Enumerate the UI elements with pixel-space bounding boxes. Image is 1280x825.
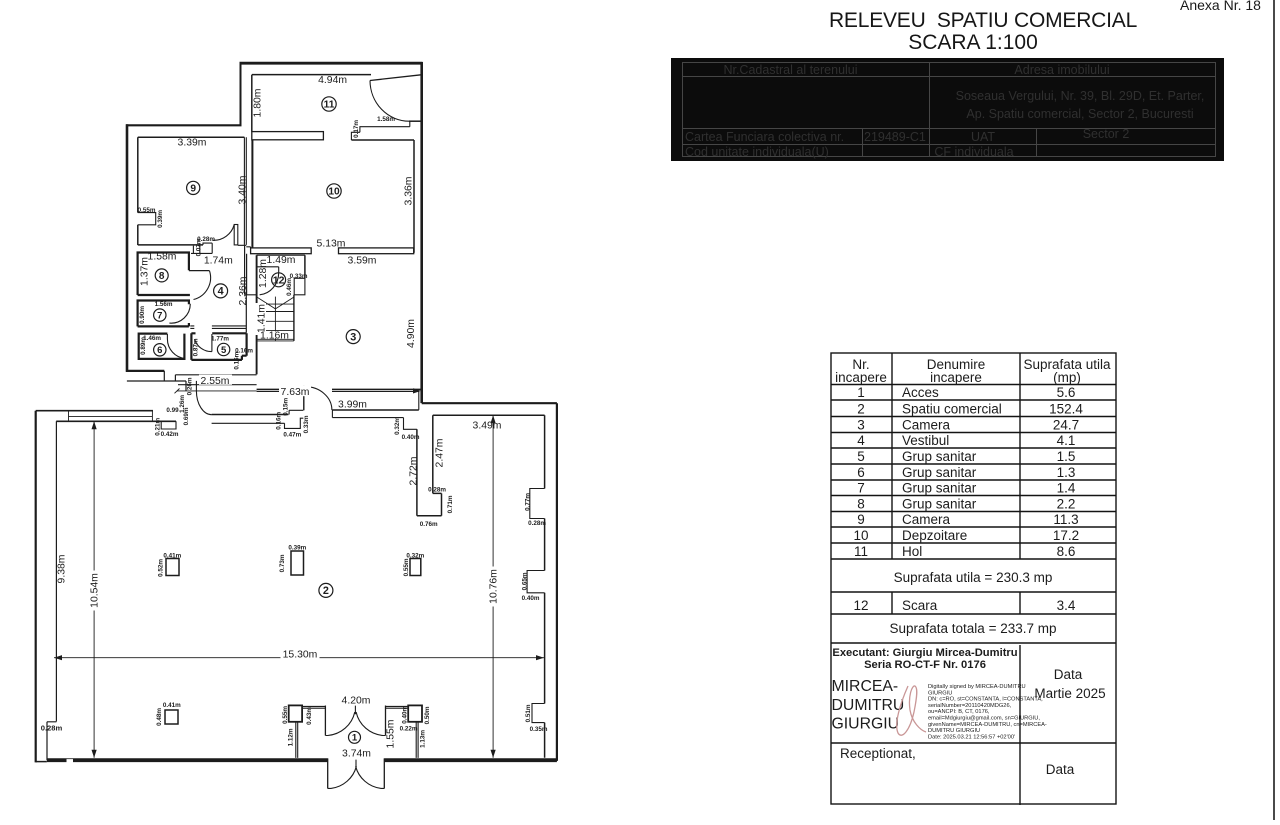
svg-text:1.5: 1.5 xyxy=(1057,449,1076,464)
svg-text:Vestibul: Vestibul xyxy=(902,433,949,448)
svg-text:1: 1 xyxy=(352,733,358,744)
svg-text:1.16m: 1.16m xyxy=(260,330,289,341)
svg-text:0.48m: 0.48m xyxy=(156,708,163,726)
svg-text:7: 7 xyxy=(157,311,162,322)
svg-text:0.17m: 0.17m xyxy=(353,120,360,138)
svg-text:Data: Data xyxy=(1054,667,1083,682)
svg-text:4.94m: 4.94m xyxy=(318,75,347,86)
svg-text:1.55m: 1.55m xyxy=(385,720,396,749)
svg-text:1.3: 1.3 xyxy=(1057,465,1076,480)
svg-text:0.26m: 0.26m xyxy=(186,377,193,395)
svg-text:1.77m: 1.77m xyxy=(211,336,229,343)
svg-text:DUMITRU GIURGIU: DUMITRU GIURGIU xyxy=(928,728,980,734)
svg-text:Acces: Acces xyxy=(902,385,939,400)
svg-text:2: 2 xyxy=(323,585,329,597)
svg-text:1.49m: 1.49m xyxy=(267,255,296,266)
svg-text:4.1: 4.1 xyxy=(1057,433,1076,448)
svg-text:4.20m: 4.20m xyxy=(342,695,371,706)
svg-text:Martie 2025: Martie 2025 xyxy=(1034,686,1105,701)
svg-text:0.32m: 0.32m xyxy=(394,417,401,435)
svg-text:0.28m: 0.28m xyxy=(528,520,546,527)
svg-text:Grup sanitar: Grup sanitar xyxy=(902,481,977,496)
svg-text:GIURGIU: GIURGIU xyxy=(832,716,900,733)
svg-text:email=Mdgiurgiu@gmail.com, sn=: email=Mdgiurgiu@gmail.com, sn=GIURGIU, xyxy=(928,716,1040,722)
svg-text:12: 12 xyxy=(853,598,868,613)
svg-text:1: 1 xyxy=(857,385,865,400)
svg-text:0.71m: 0.71m xyxy=(447,495,454,513)
svg-text:0.39m: 0.39m xyxy=(288,545,306,552)
svg-text:0.99: 0.99 xyxy=(166,407,179,414)
svg-text:1.74m: 1.74m xyxy=(204,256,233,267)
svg-text:Grup sanitar: Grup sanitar xyxy=(902,449,977,464)
svg-text:serialNumber=20110420MDG26,: serialNumber=20110420MDG26, xyxy=(928,703,1012,709)
svg-text:152.4: 152.4 xyxy=(1049,402,1083,417)
svg-text:0.55m: 0.55m xyxy=(138,207,156,214)
svg-text:4: 4 xyxy=(857,433,865,448)
svg-text:8: 8 xyxy=(159,271,165,282)
svg-text:24.7: 24.7 xyxy=(1053,418,1079,433)
svg-text:1.80m: 1.80m xyxy=(252,89,263,118)
svg-text:2: 2 xyxy=(857,402,865,417)
svg-text:MIRCEA-: MIRCEA- xyxy=(832,678,899,695)
svg-text:4.90m: 4.90m xyxy=(406,319,417,348)
svg-text:Scara: Scara xyxy=(902,598,938,613)
svg-text:11: 11 xyxy=(324,100,335,111)
svg-text:0.55m: 0.55m xyxy=(282,706,289,724)
svg-text:5: 5 xyxy=(221,345,227,356)
svg-text:Receptionat,: Receptionat, xyxy=(840,746,916,761)
svg-text:Hol: Hol xyxy=(902,544,922,559)
svg-text:0.87m: 0.87m xyxy=(193,338,200,356)
svg-text:1.58m: 1.58m xyxy=(148,251,177,262)
svg-text:6: 6 xyxy=(857,465,865,480)
svg-text:10.54m: 10.54m xyxy=(90,573,101,608)
svg-text:2.47m: 2.47m xyxy=(435,439,446,468)
svg-text:0.76m: 0.76m xyxy=(420,521,438,528)
svg-text:0.90m: 0.90m xyxy=(139,306,146,324)
svg-text:2.36m: 2.36m xyxy=(238,277,249,306)
svg-text:8: 8 xyxy=(857,497,865,512)
svg-text:0.16m: 0.16m xyxy=(234,351,241,369)
svg-text:Grup sanitar: Grup sanitar xyxy=(902,465,977,480)
svg-text:Executant: Giurgiu Mircea-Dumi: Executant: Giurgiu Mircea-Dumitru xyxy=(832,647,1017,659)
svg-text:0.35m: 0.35m xyxy=(530,726,548,733)
svg-text:0.40m: 0.40m xyxy=(522,595,540,602)
svg-text:5.6: 5.6 xyxy=(1057,385,1076,400)
svg-text:1.4: 1.4 xyxy=(1057,481,1076,496)
svg-text:0.07m: 0.07m xyxy=(196,238,203,256)
svg-text:Camera: Camera xyxy=(902,418,951,433)
svg-text:0.65m: 0.65m xyxy=(522,572,529,590)
svg-text:Camera: Camera xyxy=(902,512,951,527)
svg-text:0.39m: 0.39m xyxy=(157,210,164,228)
svg-text:Date: 2025.03.21 12:56:57 +02': Date: 2025.03.21 12:56:57 +02'00' xyxy=(928,734,1015,740)
svg-text:1.12m: 1.12m xyxy=(288,728,295,746)
svg-text:0.50m: 0.50m xyxy=(424,706,431,724)
svg-text:0.28m: 0.28m xyxy=(41,723,63,732)
svg-text:Spatiu comercial: Spatiu comercial xyxy=(902,402,1002,417)
svg-text:GIURGIU: GIURGIU xyxy=(928,690,952,696)
svg-text:1.37m: 1.37m xyxy=(139,257,150,286)
svg-text:ou=ANCPI: B, CT, 0176,: ou=ANCPI: B, CT, 0176, xyxy=(928,709,990,715)
svg-text:Suprafata totala = 233.7 mp: Suprafata totala = 233.7 mp xyxy=(890,621,1057,636)
svg-text:3.59m: 3.59m xyxy=(348,255,377,266)
svg-text:Suprafata utila = 230.3 mp: Suprafata utila = 230.3 mp xyxy=(894,570,1053,585)
svg-text:0.43m: 0.43m xyxy=(306,707,313,725)
svg-text:7: 7 xyxy=(857,481,865,496)
svg-text:Seria RO-CT-F Nr. 0176: Seria RO-CT-F Nr. 0176 xyxy=(864,659,986,671)
svg-text:DUMITRU: DUMITRU xyxy=(832,697,905,714)
svg-text:9: 9 xyxy=(190,184,196,195)
svg-text:Grup sanitar: Grup sanitar xyxy=(902,497,977,512)
svg-text:3.36m: 3.36m xyxy=(404,177,415,206)
svg-text:3: 3 xyxy=(857,418,865,433)
svg-text:7.63m: 7.63m xyxy=(281,387,310,398)
svg-text:0.89m: 0.89m xyxy=(140,337,147,355)
svg-text:6: 6 xyxy=(157,345,162,356)
svg-text:0.42m: 0.42m xyxy=(161,431,179,438)
svg-text:Data: Data xyxy=(1046,762,1075,777)
svg-text:2.55m: 2.55m xyxy=(201,376,230,387)
svg-text:(mp): (mp) xyxy=(1053,370,1081,385)
svg-text:5.13m: 5.13m xyxy=(317,238,346,249)
svg-text:4: 4 xyxy=(218,286,224,298)
svg-text:DN: c=RO, st=CONSTANTA, l=CONS: DN: c=RO, st=CONSTANTA, l=CONSTANTA, xyxy=(928,697,1043,703)
svg-text:1.13m: 1.13m xyxy=(420,730,427,748)
svg-text:0.15m: 0.15m xyxy=(283,397,290,415)
svg-text:0.28m: 0.28m xyxy=(428,487,446,494)
svg-text:0.22m: 0.22m xyxy=(400,725,418,732)
svg-text:0.16m: 0.16m xyxy=(276,411,283,429)
svg-text:10: 10 xyxy=(328,187,340,198)
svg-text:2.2: 2.2 xyxy=(1057,497,1076,512)
svg-text:11: 11 xyxy=(854,544,868,559)
svg-text:0.77m: 0.77m xyxy=(525,493,532,511)
svg-text:1.28m: 1.28m xyxy=(258,259,269,288)
svg-text:incapere: incapere xyxy=(930,370,982,385)
svg-text:17.2: 17.2 xyxy=(1053,528,1079,543)
svg-text:givenName=MIRCEA-DUMITRU, cn=M: givenName=MIRCEA-DUMITRU, cn=MIRCEA- xyxy=(928,722,1047,728)
svg-text:Digitally signed by MIRCEA-DUM: Digitally signed by MIRCEA-DUMITRU xyxy=(928,684,1026,690)
svg-text:8.6: 8.6 xyxy=(1057,544,1076,559)
svg-text:3.39m: 3.39m xyxy=(178,137,207,148)
svg-text:3.74m: 3.74m xyxy=(342,748,371,759)
svg-text:10: 10 xyxy=(853,528,868,543)
svg-text:9: 9 xyxy=(857,512,865,527)
svg-text:11.3: 11.3 xyxy=(1053,512,1078,527)
svg-text:3.40m: 3.40m xyxy=(238,176,249,205)
svg-text:2.72m: 2.72m xyxy=(409,457,420,486)
svg-text:1.56m: 1.56m xyxy=(155,301,173,308)
svg-text:0.73m: 0.73m xyxy=(279,554,286,572)
svg-text:0.46m: 0.46m xyxy=(286,278,293,296)
svg-text:3.4: 3.4 xyxy=(1057,598,1076,613)
svg-text:3: 3 xyxy=(350,331,356,343)
svg-text:0.69m: 0.69m xyxy=(183,407,190,425)
svg-text:0.55m: 0.55m xyxy=(403,558,410,576)
svg-text:incapere: incapere xyxy=(835,370,887,385)
svg-text:0.41m: 0.41m xyxy=(163,702,181,709)
svg-text:Depzoitare: Depzoitare xyxy=(902,528,967,543)
svg-text:9.38m: 9.38m xyxy=(57,555,68,584)
svg-text:3.49m: 3.49m xyxy=(473,421,502,432)
svg-text:12: 12 xyxy=(273,274,285,286)
svg-text:0.40m: 0.40m xyxy=(402,434,420,441)
svg-text:0.33m: 0.33m xyxy=(303,415,310,433)
svg-text:0.51m: 0.51m xyxy=(525,704,532,722)
svg-text:0.47m: 0.47m xyxy=(283,431,301,438)
svg-text:15.30m: 15.30m xyxy=(283,650,318,661)
svg-text:1.58m: 1.58m xyxy=(377,116,395,123)
svg-text:3.99m: 3.99m xyxy=(338,399,367,410)
svg-text:0.40m: 0.40m xyxy=(402,705,409,723)
svg-text:10.76m: 10.76m xyxy=(489,569,500,604)
svg-text:0.41m: 0.41m xyxy=(163,552,181,559)
svg-text:5: 5 xyxy=(857,449,865,464)
svg-text:1.41m: 1.41m xyxy=(256,304,267,333)
svg-text:0.52m: 0.52m xyxy=(158,559,165,577)
